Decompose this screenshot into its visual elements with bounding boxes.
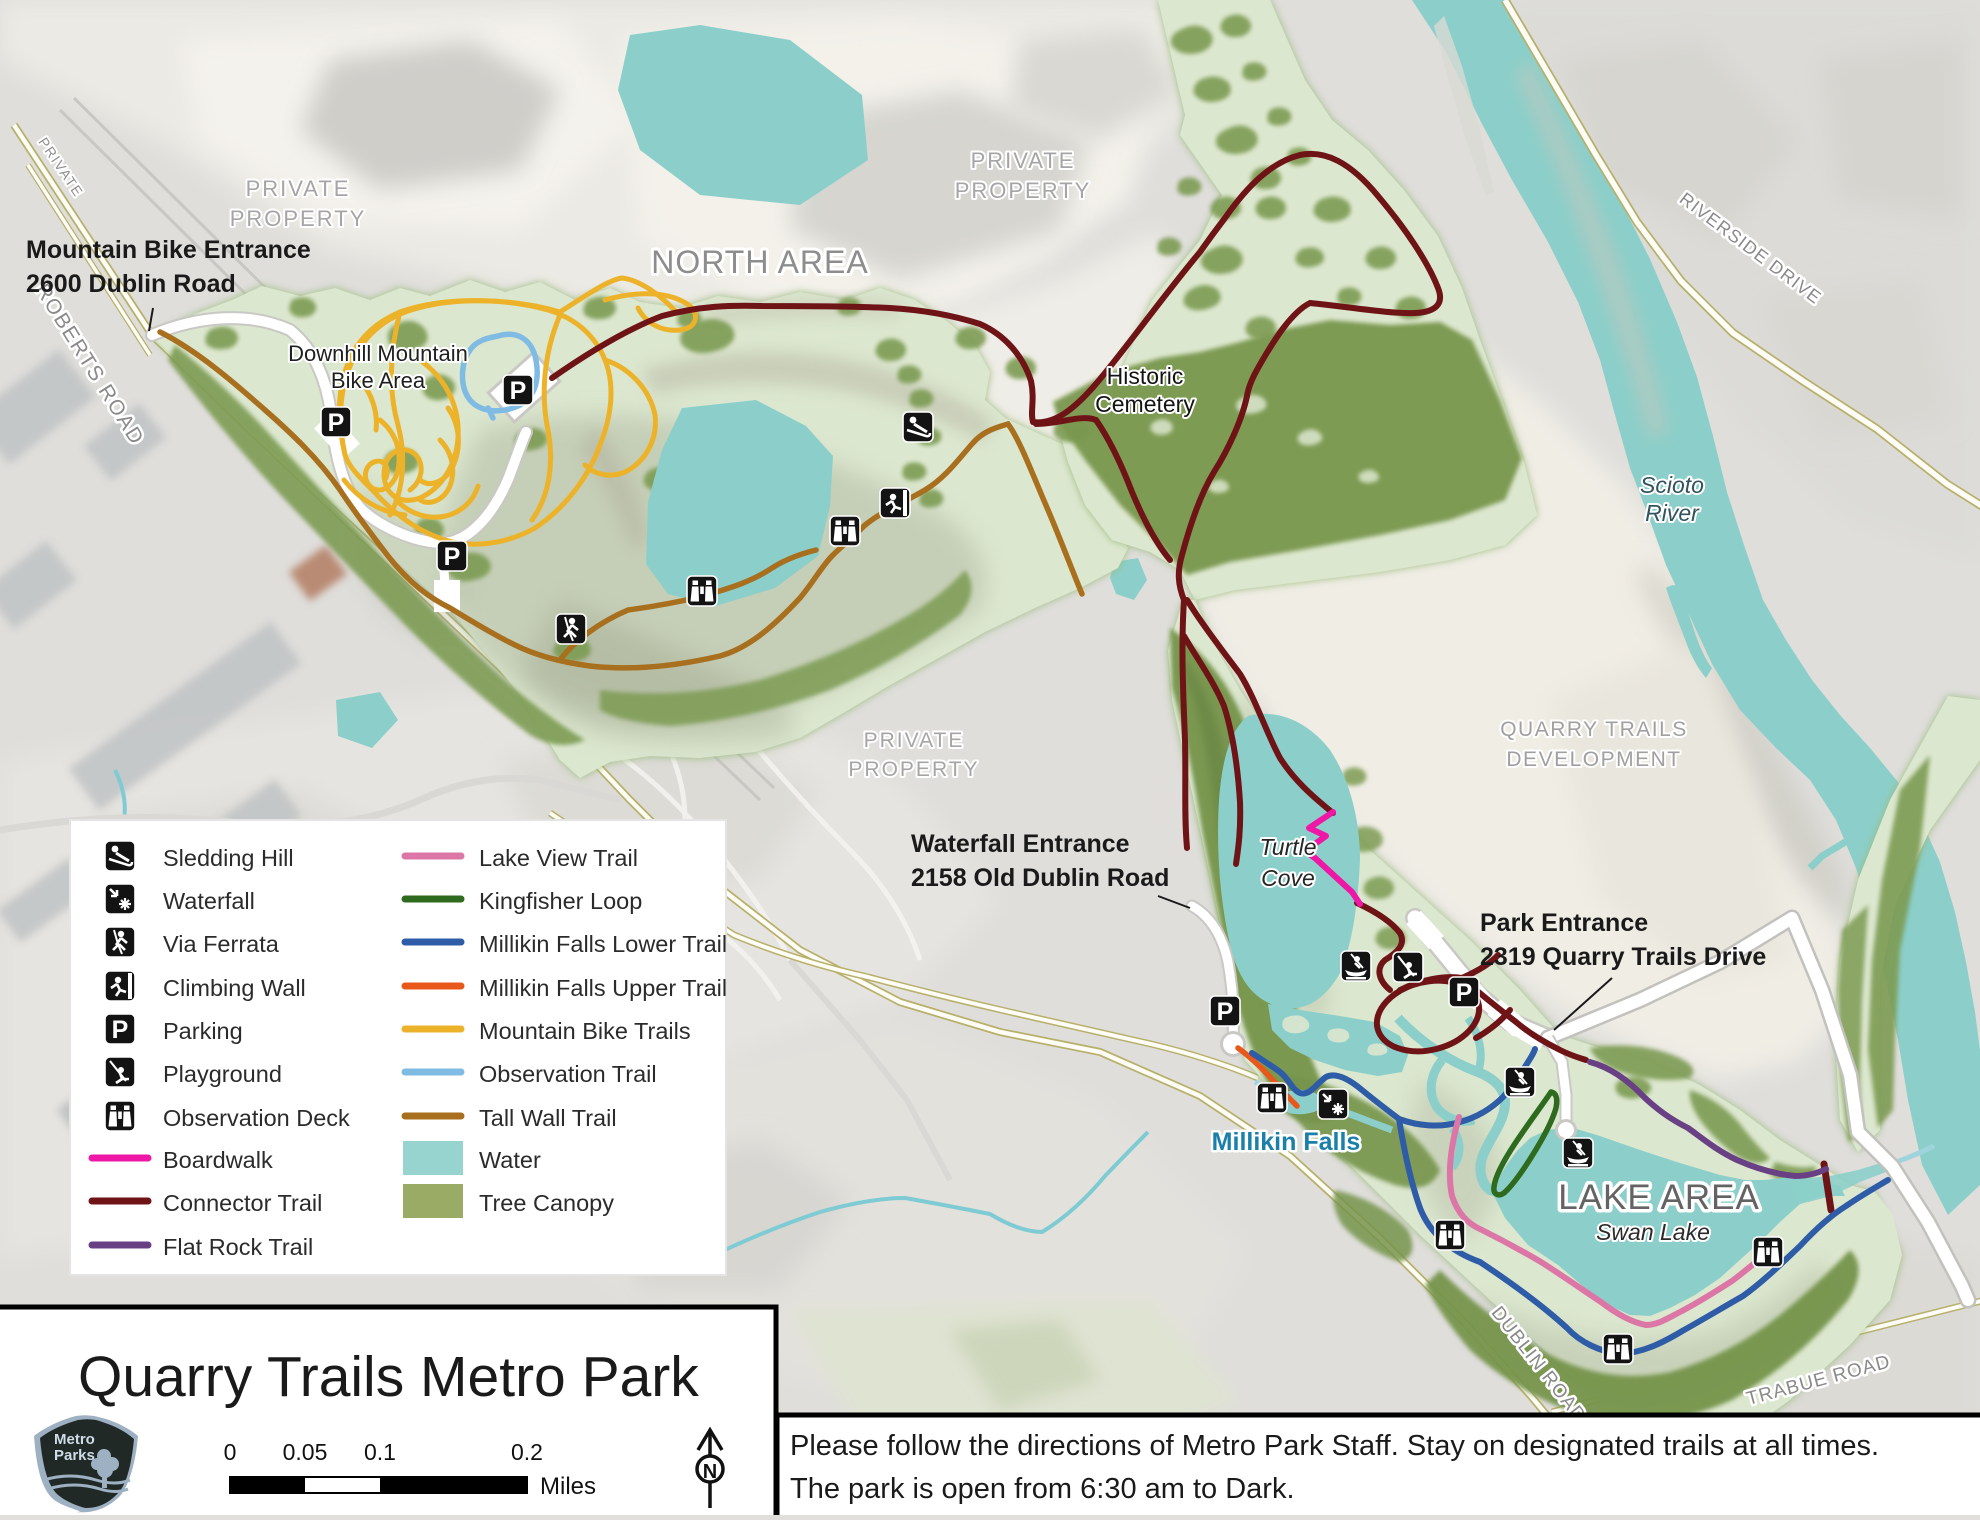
svg-text:Miles: Miles [540, 1473, 596, 1500]
svg-text:Boardwalk: Boardwalk [163, 1147, 273, 1173]
svg-text:Downhill Mountain: Downhill Mountain [288, 341, 468, 366]
svg-text:Bike Area: Bike Area [331, 368, 426, 393]
svg-text:Turtle: Turtle [1259, 834, 1316, 860]
svg-text:Lake View Trail: Lake View Trail [479, 845, 638, 871]
svg-text:Parking: Parking [163, 1018, 243, 1044]
svg-text:Climbing Wall: Climbing Wall [163, 975, 306, 1001]
svg-text:PRIVATE: PRIVATE [971, 148, 1076, 173]
svg-text:Cove: Cove [1261, 865, 1315, 891]
svg-text:Kingfisher Loop: Kingfisher Loop [479, 888, 642, 914]
svg-text:Waterfall Entrance: Waterfall Entrance [911, 830, 1130, 858]
svg-text:PROPERTY: PROPERTY [230, 206, 367, 231]
svg-text:River: River [1645, 500, 1700, 526]
svg-text:2158 Old Dublin Road: 2158 Old Dublin Road [911, 864, 1169, 892]
svg-text:Park Entrance: Park Entrance [1480, 909, 1648, 937]
svg-text:PROPERTY: PROPERTY [848, 758, 979, 781]
svg-text:2600 Dublin Road: 2600 Dublin Road [26, 270, 236, 298]
svg-text:LAKE AREA: LAKE AREA [1558, 1178, 1760, 1217]
svg-text:Swan Lake: Swan Lake [1596, 1219, 1710, 1245]
svg-text:Metro: Metro [54, 1431, 95, 1448]
svg-text:Sledding Hill: Sledding Hill [163, 845, 294, 871]
svg-text:QUARRY TRAILS: QUARRY TRAILS [1500, 718, 1688, 741]
svg-text:Quarry Trails Metro Park: Quarry Trails Metro Park [78, 1345, 699, 1409]
svg-text:Playground: Playground [163, 1061, 282, 1087]
svg-text:N: N [703, 1461, 717, 1483]
svg-text:Via Ferrata: Via Ferrata [163, 931, 280, 957]
svg-text:0.05: 0.05 [283, 1439, 328, 1465]
svg-text:Cemetery: Cemetery [1095, 391, 1195, 417]
svg-text:The park is open from 6:30 am: The park is open from 6:30 am to Dark. [790, 1473, 1295, 1505]
svg-text:Flat Rock Trail: Flat Rock Trail [163, 1234, 313, 1260]
svg-text:PRIVATE: PRIVATE [246, 176, 351, 201]
svg-text:Mountain Bike Entrance: Mountain Bike Entrance [26, 236, 311, 264]
svg-text:DEVELOPMENT: DEVELOPMENT [1506, 748, 1681, 771]
svg-text:0: 0 [224, 1439, 237, 1465]
svg-text:Connector Trail: Connector Trail [163, 1190, 322, 1216]
svg-text:0.2: 0.2 [511, 1439, 543, 1465]
svg-text:Millikin Falls Lower Trail: Millikin Falls Lower Trail [479, 931, 727, 957]
svg-text:PROPERTY: PROPERTY [955, 178, 1092, 203]
svg-text:Tall Wall Trail: Tall Wall Trail [479, 1105, 617, 1131]
svg-text:Mountain Bike Trails: Mountain Bike Trails [479, 1018, 691, 1044]
svg-text:Please follow the directions o: Please follow the directions of Metro Pa… [790, 1430, 1879, 1462]
svg-text:Observation Trail: Observation Trail [479, 1061, 657, 1087]
svg-text:Tree Canopy: Tree Canopy [479, 1190, 614, 1216]
svg-text:PRIVATE: PRIVATE [864, 729, 965, 752]
svg-text:Millikin Falls: Millikin Falls [1212, 1128, 1361, 1156]
svg-text:NORTH AREA: NORTH AREA [651, 244, 868, 280]
svg-text:Water: Water [479, 1147, 541, 1173]
svg-text:2319 Quarry Trails Drive: 2319 Quarry Trails Drive [1480, 943, 1766, 971]
svg-text:Waterfall: Waterfall [163, 888, 255, 914]
svg-text:Parks: Parks [54, 1447, 95, 1464]
svg-text:Scioto: Scioto [1640, 472, 1704, 498]
svg-text:Historic: Historic [1107, 363, 1184, 389]
svg-text:Observation Deck: Observation Deck [163, 1105, 350, 1131]
svg-text:Millikin Falls Upper Trail: Millikin Falls Upper Trail [479, 975, 727, 1001]
svg-text:0.1: 0.1 [364, 1439, 396, 1465]
